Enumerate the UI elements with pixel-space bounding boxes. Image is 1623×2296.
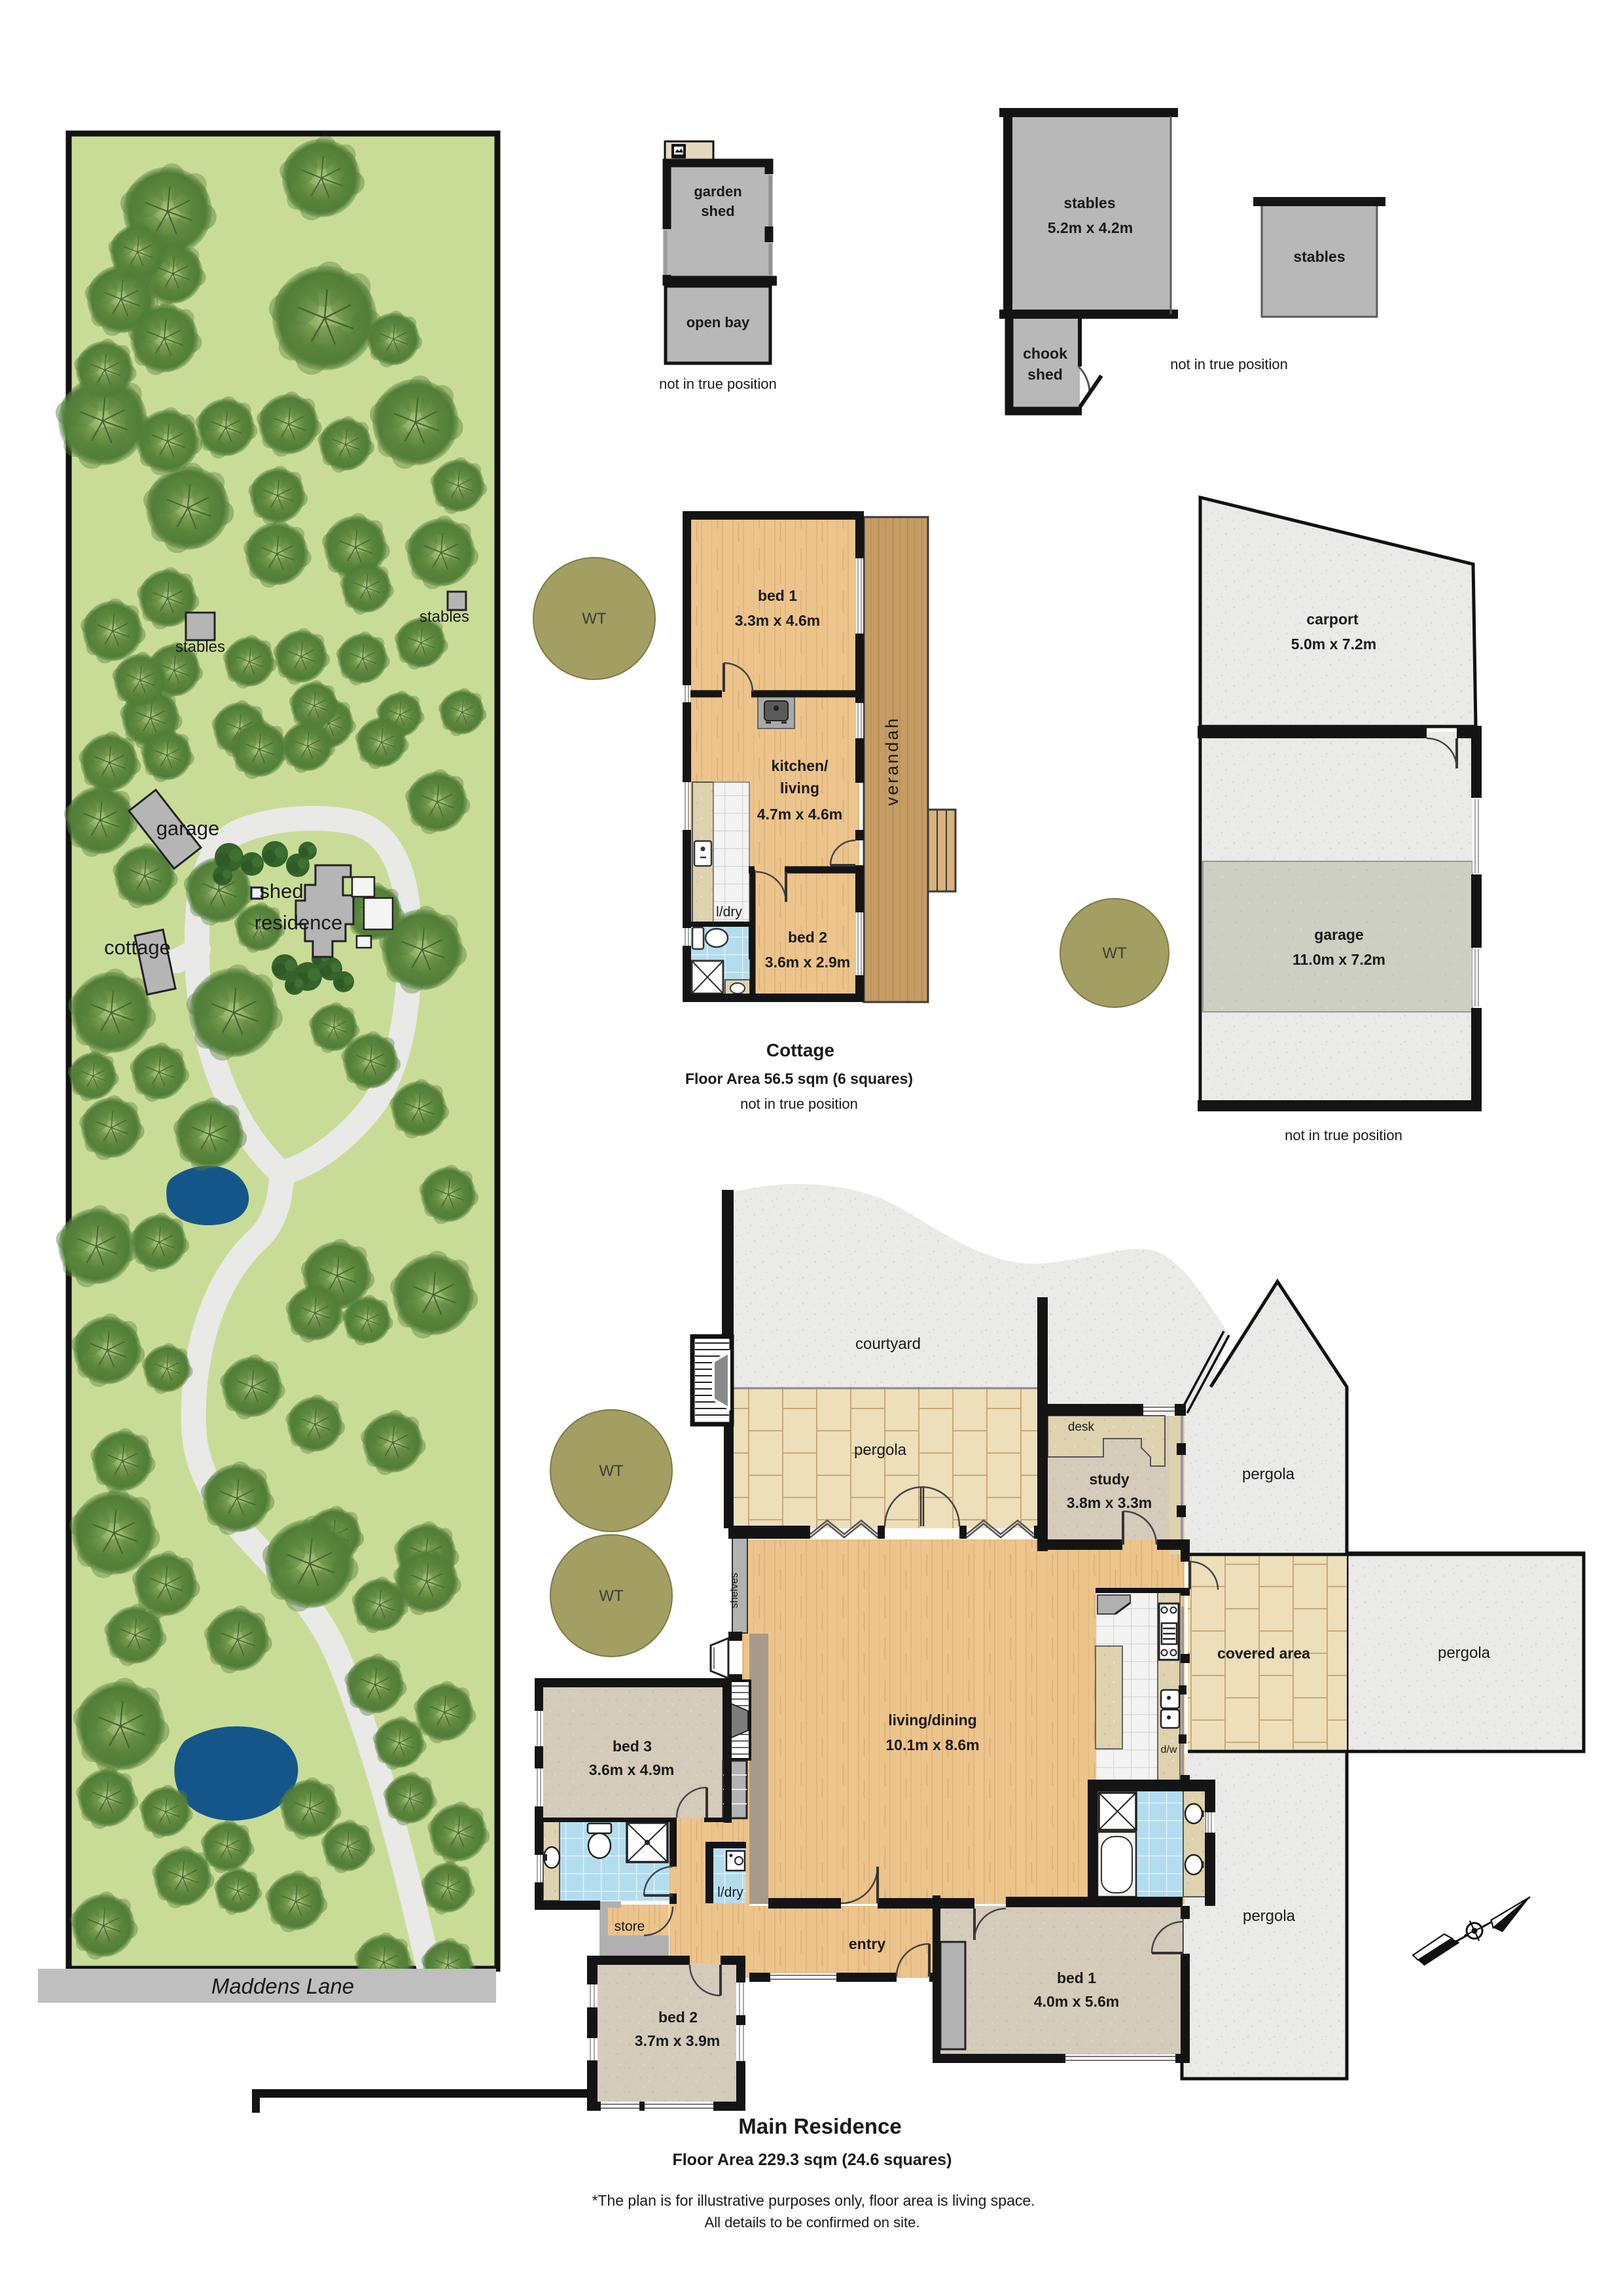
svg-text:5.2m x 4.2m: 5.2m x 4.2m <box>1048 219 1133 236</box>
svg-text:shelves: shelves <box>729 1573 740 1608</box>
svg-text:3.3m x 4.6m: 3.3m x 4.6m <box>735 612 820 629</box>
svg-text:l/dry: l/dry <box>716 905 742 920</box>
svg-text:Maddens Lane: Maddens Lane <box>211 1974 354 1998</box>
svg-text:not in true position: not in true position <box>659 376 777 392</box>
svg-text:store: store <box>615 1919 645 1934</box>
svg-text:WT: WT <box>599 1587 624 1605</box>
svg-text:not in true position: not in true position <box>740 1096 858 1112</box>
svg-text:living/dining: living/dining <box>888 1712 976 1729</box>
svg-text:*The plan is for illustrative: *The plan is for illustrative purposes o… <box>592 2192 1035 2209</box>
svg-text:garden: garden <box>694 183 741 200</box>
svg-text:pergola: pergola <box>1242 1465 1295 1483</box>
svg-text:3.6m x 2.9m: 3.6m x 2.9m <box>765 954 850 971</box>
svg-text:entry: entry <box>849 1935 885 1952</box>
svg-text:residence: residence <box>255 911 342 934</box>
svg-text:not in true position: not in true position <box>1170 356 1288 372</box>
svg-text:stables: stables <box>1293 248 1345 265</box>
svg-text:shed: shed <box>1027 366 1063 383</box>
svg-text:5.0m x 7.2m: 5.0m x 7.2m <box>1291 636 1376 653</box>
svg-text:WT: WT <box>582 610 607 628</box>
svg-text:l/dry: l/dry <box>717 1885 743 1900</box>
svg-text:desk: desk <box>1068 1420 1095 1434</box>
svg-text:pergola: pergola <box>1438 1644 1491 1662</box>
svg-text:10.1m x 8.6m: 10.1m x 8.6m <box>885 1736 979 1753</box>
svg-text:Floor Area 229.3 sqm (24.6 squ: Floor Area 229.3 sqm (24.6 squares) <box>672 2151 952 2169</box>
svg-text:cottage: cottage <box>104 936 171 959</box>
svg-text:11.0m x 7.2m: 11.0m x 7.2m <box>1293 951 1385 968</box>
svg-text:stables: stables <box>1063 194 1115 211</box>
svg-text:pergola: pergola <box>1243 1907 1296 1925</box>
svg-text:All details to be confirmed on: All details to be confirmed on site. <box>705 2214 920 2231</box>
svg-text:garage: garage <box>1314 926 1363 943</box>
svg-text:stables: stables <box>419 608 469 626</box>
svg-text:courtyard: courtyard <box>855 1335 921 1353</box>
svg-text:4.7m x 4.6m: 4.7m x 4.6m <box>757 806 842 823</box>
svg-text:kitchen/: kitchen/ <box>772 757 829 774</box>
svg-text:living: living <box>780 780 819 797</box>
svg-text:WT: WT <box>599 1462 624 1480</box>
svg-text:WT: WT <box>1102 944 1127 962</box>
svg-text:Cottage: Cottage <box>766 1040 834 1060</box>
svg-text:open bay: open bay <box>687 314 750 331</box>
svg-text:bed 1: bed 1 <box>1057 1969 1096 1986</box>
svg-text:carport: carport <box>1306 611 1359 628</box>
svg-text:study: study <box>1089 1471 1130 1488</box>
svg-text:bed 2: bed 2 <box>658 2009 698 2026</box>
svg-text:4.0m x 5.6m: 4.0m x 5.6m <box>1034 1993 1119 2010</box>
svg-text:pergola: pergola <box>854 1441 907 1459</box>
svg-text:garage: garage <box>156 817 220 840</box>
svg-text:d/w: d/w <box>1161 1744 1177 1755</box>
svg-text:bed 1: bed 1 <box>758 587 797 604</box>
svg-text:3.7m x 3.9m: 3.7m x 3.9m <box>635 2032 720 2049</box>
svg-text:bed 2: bed 2 <box>788 929 827 946</box>
svg-text:covered area: covered area <box>1217 1645 1310 1662</box>
svg-text:3.8m x 3.3m: 3.8m x 3.3m <box>1067 1494 1152 1511</box>
svg-text:shed: shed <box>701 203 734 219</box>
svg-text:chook: chook <box>1023 345 1067 362</box>
svg-text:verandah: verandah <box>882 717 902 806</box>
svg-text:stables: stables <box>175 638 225 656</box>
svg-text:3.6m x 4.9m: 3.6m x 4.9m <box>589 1761 674 1778</box>
svg-text:shed: shed <box>259 880 303 903</box>
svg-text:Floor Area 56.5 sqm (6 squares: Floor Area 56.5 sqm (6 squares) <box>685 1070 913 1087</box>
svg-text:Main Residence: Main Residence <box>738 2114 901 2138</box>
svg-text:not in true position: not in true position <box>1285 1127 1402 1143</box>
svg-text:bed 3: bed 3 <box>613 1738 652 1755</box>
